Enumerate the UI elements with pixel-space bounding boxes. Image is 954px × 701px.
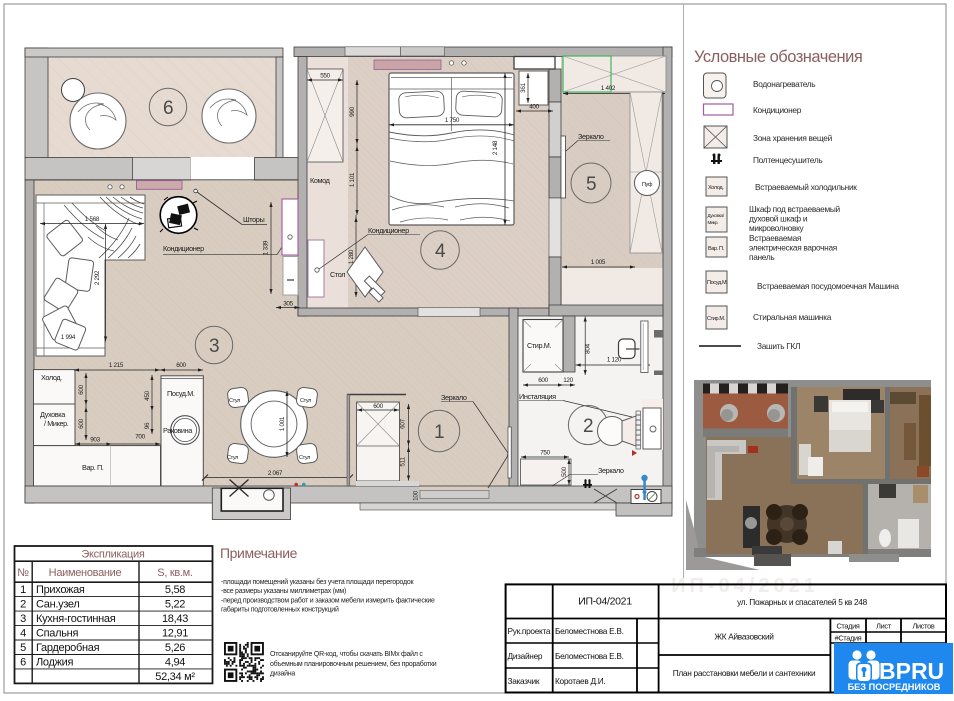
- svg-text:1 750: 1 750: [445, 117, 460, 124]
- svg-text:№: №: [17, 567, 29, 579]
- svg-text:Пуф: Пуф: [642, 182, 653, 188]
- svg-text:500: 500: [561, 466, 568, 476]
- svg-text:2 067: 2 067: [268, 470, 283, 477]
- svg-text:1 402: 1 402: [601, 85, 616, 92]
- svg-text:607: 607: [400, 418, 407, 428]
- svg-text:Зона хранения вещей: Зона хранения вещей: [753, 133, 833, 143]
- svg-text:52,34 м²: 52,34 м²: [155, 671, 195, 683]
- svg-text:Экспликация: Экспликация: [81, 549, 144, 561]
- svg-text:100: 100: [413, 490, 420, 500]
- svg-text:Стир.М.: Стир.М.: [527, 341, 551, 350]
- svg-text:ЖК Айвазовский: ЖК Айвазовский: [714, 632, 774, 642]
- svg-text:2 148: 2 148: [492, 140, 499, 155]
- svg-text:4: 4: [20, 627, 26, 639]
- svg-text:Холод.: Холод.: [41, 373, 62, 382]
- svg-text:Кондиционер: Кондиционер: [368, 226, 409, 235]
- svg-text:1: 1: [434, 422, 444, 443]
- svg-text:Полтенцесушитель: Полтенцесушитель: [753, 155, 822, 165]
- svg-text:Вар. П.: Вар. П.: [82, 463, 104, 472]
- svg-text:/ Микер.: / Микер.: [44, 419, 69, 428]
- svg-text:1 994: 1 994: [61, 334, 76, 341]
- svg-text:Стул: Стул: [299, 455, 310, 461]
- svg-text:#Стадия: #Стадия: [835, 634, 862, 643]
- svg-text:Духовка/: Духовка/: [708, 213, 725, 218]
- svg-text:габариты подготовленных констр: габариты подготовленных конструкций: [221, 606, 339, 614]
- svg-text:Кондиционер: Кондиционер: [753, 105, 802, 115]
- svg-text:Наименование: Наименование: [49, 567, 122, 579]
- svg-text:Вар. П.: Вар. П.: [708, 246, 725, 252]
- svg-text:Встраеваемая: Встраеваемая: [749, 233, 801, 243]
- svg-text:5: 5: [20, 642, 26, 654]
- svg-text:объемным планировочным решение: объемным планировочным решением, без про…: [270, 660, 437, 668]
- svg-text:Стул: Стул: [227, 455, 238, 461]
- svg-text:Посуд.М.: Посуд.М.: [707, 280, 728, 286]
- svg-text:микроволновку: микроволновку: [749, 223, 805, 233]
- svg-text:Лоджия: Лоджия: [36, 656, 74, 668]
- svg-text:804: 804: [585, 343, 592, 353]
- svg-text:600: 600: [78, 384, 85, 394]
- svg-text:903: 903: [90, 437, 100, 444]
- svg-text:-все размеры указаны миллиметр: -все размеры указаны миллиметрах (мм): [221, 588, 346, 595]
- svg-text:Стир.М.: Стир.М.: [707, 316, 726, 322]
- svg-text:Стадия: Стадия: [836, 622, 859, 631]
- svg-text:1 001: 1 001: [279, 416, 286, 431]
- svg-text:Зеркало: Зеркало: [441, 393, 467, 402]
- svg-text:700: 700: [135, 434, 145, 441]
- svg-text:Беломестнова Е.В.: Беломестнова Е.В.: [555, 626, 624, 636]
- svg-text:5,22: 5,22: [165, 599, 185, 611]
- svg-text:Беломестнова Е.В.: Беломестнова Е.В.: [555, 651, 624, 661]
- svg-text:Зашить ГКЛ: Зашить ГКЛ: [757, 341, 800, 351]
- svg-text:S, кв.м.: S, кв.м.: [157, 567, 193, 579]
- svg-text:Лист: Лист: [876, 622, 892, 631]
- svg-text:600: 600: [176, 362, 186, 369]
- svg-text:Шторы: Шторы: [243, 215, 264, 224]
- svg-text:Рук.проекта: Рук.проекта: [508, 626, 551, 636]
- svg-text:4: 4: [435, 241, 446, 262]
- svg-text:2: 2: [20, 599, 26, 611]
- svg-text:Инсталяция: Инсталяция: [519, 392, 556, 401]
- svg-text:Посуд.М.: Посуд.М.: [167, 389, 195, 398]
- svg-text:Водонагреватель: Водонагреватель: [753, 79, 815, 89]
- svg-text:1 215: 1 215: [109, 362, 124, 369]
- svg-text:Дизайнер: Дизайнер: [508, 651, 543, 661]
- svg-text:Холод.: Холод.: [708, 185, 724, 191]
- svg-text:Листов: Листов: [913, 622, 935, 631]
- svg-text:4,94: 4,94: [165, 656, 185, 668]
- svg-text:1 005: 1 005: [591, 259, 606, 266]
- svg-text:96: 96: [144, 422, 151, 429]
- svg-text:990: 990: [349, 106, 356, 116]
- svg-text:5: 5: [586, 174, 596, 195]
- svg-text:Раковина: Раковина: [163, 426, 193, 435]
- svg-text:План расстановки мебели и сант: План расстановки мебели и сантехники: [673, 668, 816, 678]
- svg-text:Примечание: Примечание: [220, 545, 298, 561]
- svg-text:12,91: 12,91: [162, 627, 188, 639]
- svg-text:550: 550: [320, 73, 330, 80]
- svg-text:2 292: 2 292: [94, 270, 101, 285]
- svg-text:Духовка: Духовка: [40, 410, 66, 419]
- svg-text:Зеркало: Зеркало: [578, 132, 604, 141]
- svg-text:Встраеваемая посудомоечная Маш: Встраеваемая посудомоечная Машина: [757, 281, 899, 291]
- svg-text:5,58: 5,58: [165, 584, 185, 596]
- svg-text:Спальня: Спальня: [36, 627, 78, 639]
- svg-text:3: 3: [209, 336, 219, 357]
- svg-text:Стол: Стол: [330, 270, 345, 279]
- svg-text:1 101: 1 101: [349, 172, 356, 187]
- svg-text:361: 361: [520, 82, 527, 92]
- svg-text:Стул: Стул: [229, 398, 240, 404]
- svg-text:Сан.узел: Сан.узел: [36, 599, 80, 611]
- svg-text:Кухня-гостинная: Кухня-гостинная: [36, 613, 116, 625]
- svg-text:600: 600: [373, 403, 383, 410]
- svg-text:-площади помещений указаны без: -площади помещений указаны без учета пло…: [221, 578, 414, 586]
- svg-text:450: 450: [144, 390, 151, 400]
- svg-text:-перед производством работ и з: -перед производством работ и заказом меб…: [221, 597, 435, 605]
- svg-text:электрическая варочная: электрическая варочная: [749, 243, 837, 253]
- svg-text:5,26: 5,26: [165, 642, 185, 654]
- svg-text:дизайна: дизайна: [270, 670, 295, 678]
- svg-text:Шкаф под встраеваемый: Шкаф под встраеваемый: [749, 204, 841, 214]
- svg-text:BPRU: BPRU: [879, 658, 944, 684]
- svg-text:ИП-04/2021: ИП-04/2021: [671, 575, 819, 597]
- svg-text:Микр.: Микр.: [708, 220, 719, 225]
- svg-text:Коротаев Д.И.: Коротаев Д.И.: [555, 676, 605, 686]
- svg-text:1 339: 1 339: [263, 240, 270, 255]
- svg-text:Стиральная машинка: Стиральная машинка: [753, 312, 832, 322]
- svg-text:Зеркало: Зеркало: [598, 466, 624, 475]
- svg-text:ИП-04/2021: ИП-04/2021: [578, 596, 632, 608]
- svg-text:18,43: 18,43: [162, 613, 188, 625]
- svg-text:ул. Пожарных и спасателей 5 кв: ул. Пожарных и спасателей 5 кв 248: [737, 597, 867, 607]
- svg-text:120: 120: [563, 377, 573, 384]
- svg-text:1 568: 1 568: [85, 216, 100, 223]
- svg-text:Прихожая: Прихожая: [36, 584, 85, 596]
- svg-text:600: 600: [538, 377, 548, 384]
- svg-text:Кондиционер: Кондиционер: [163, 244, 204, 253]
- svg-text:750: 750: [540, 450, 550, 457]
- svg-text:3: 3: [20, 613, 26, 625]
- svg-text:305: 305: [283, 301, 293, 308]
- svg-text:Условные обозначения: Условные обозначения: [694, 48, 862, 66]
- svg-text:Стул: Стул: [300, 398, 311, 404]
- svg-text:6: 6: [163, 98, 173, 119]
- svg-text:Отсканируйте QR-код, чтобы ска: Отсканируйте QR-код, чтобы скачать BIMx …: [270, 650, 423, 658]
- svg-text:панель: панель: [749, 252, 774, 262]
- svg-text:2: 2: [583, 416, 593, 437]
- svg-text:1: 1: [20, 584, 26, 596]
- svg-text:духовой шкаф и: духовой шкаф и: [749, 214, 808, 224]
- svg-text:Комод: Комод: [310, 176, 331, 185]
- svg-text:Гардеробная: Гардеробная: [36, 642, 100, 654]
- svg-text:Заказчик: Заказчик: [508, 676, 540, 686]
- svg-text:БЕЗ ПОСРЕДНИКОВ: БЕЗ ПОСРЕДНИКОВ: [848, 682, 941, 692]
- svg-text:400: 400: [529, 104, 539, 111]
- svg-text:Встраеваемый холодильник: Встраеваемый холодильник: [755, 182, 857, 192]
- svg-text:511: 511: [400, 457, 407, 467]
- svg-text:600: 600: [78, 418, 85, 428]
- svg-text:6: 6: [20, 656, 26, 668]
